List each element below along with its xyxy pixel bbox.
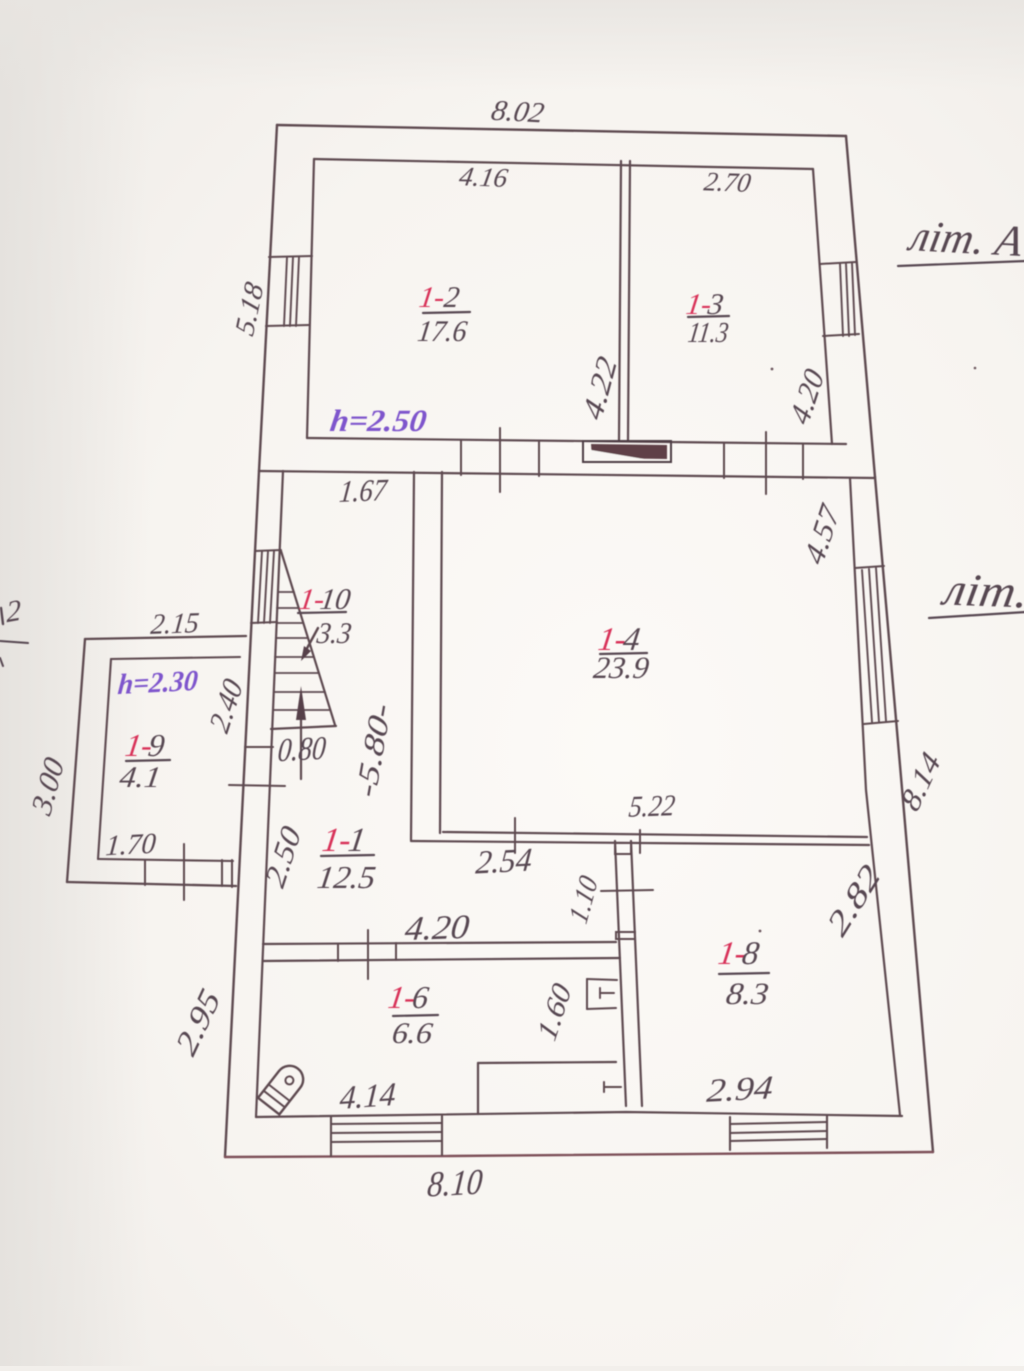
- svg-text:h=2.30: h=2.30: [116, 665, 199, 701]
- svg-text:1.67: 1.67: [338, 472, 390, 509]
- svg-text:4.1: 4.1: [118, 760, 164, 794]
- svg-text:23.9: 23.9: [592, 650, 652, 685]
- svg-text:літ. А: літ. А: [903, 211, 1024, 265]
- svg-text:5.22: 5.22: [627, 788, 677, 824]
- svg-text:0.80: 0.80: [276, 730, 328, 770]
- svg-text:17.6: 17.6: [416, 314, 470, 348]
- svg-text:3.3: 3.3: [314, 616, 354, 650]
- svg-text:2.54: 2.54: [474, 842, 533, 882]
- svg-text:12.5: 12.5: [315, 859, 378, 895]
- svg-text:літ.: літ.: [937, 564, 1024, 618]
- svg-text:4.20: 4.20: [403, 909, 471, 948]
- svg-text:h=2.50: h=2.50: [328, 403, 429, 438]
- svg-text:4.14: 4.14: [339, 1076, 397, 1117]
- svg-text:10: 10: [318, 582, 353, 616]
- svg-text:2.94: 2.94: [705, 1069, 774, 1109]
- svg-text:8.10: 8.10: [426, 1162, 484, 1205]
- svg-text:2.15: 2.15: [149, 607, 200, 641]
- svg-text:11.3: 11.3: [686, 317, 730, 349]
- svg-text:2.70: 2.70: [702, 166, 754, 197]
- svg-text:8.3: 8.3: [724, 976, 771, 1011]
- svg-text:8.02: 8.02: [489, 95, 547, 129]
- svg-text:1.70: 1.70: [104, 828, 157, 863]
- svg-text:4.16: 4.16: [457, 161, 511, 192]
- svg-text:6.6: 6.6: [390, 1016, 435, 1050]
- svg-text:2: 2: [6, 593, 22, 630]
